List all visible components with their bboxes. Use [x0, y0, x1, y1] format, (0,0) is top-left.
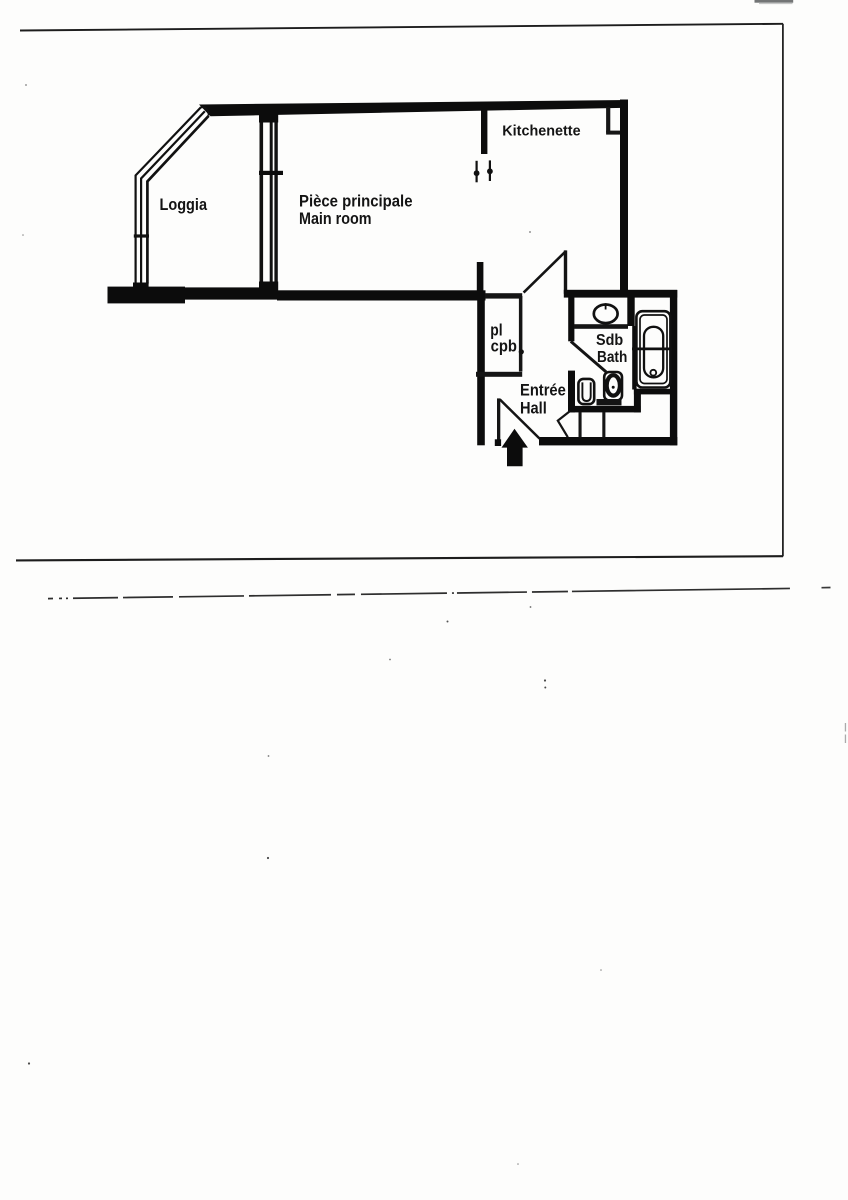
svg-text:Loggia: Loggia [160, 196, 208, 214]
svg-text:Pièce principale: Pièce principale [299, 193, 413, 211]
svg-text:Hall: Hall [520, 399, 547, 418]
svg-text:Sdb: Sdb [596, 332, 623, 349]
svg-text:Bath: Bath [597, 349, 627, 366]
svg-text:Entrée: Entrée [520, 381, 566, 400]
svg-text:Main room: Main room [299, 210, 372, 228]
svg-text:Kitchenette: Kitchenette [502, 123, 580, 140]
svg-text:cpb: cpb [491, 337, 517, 356]
